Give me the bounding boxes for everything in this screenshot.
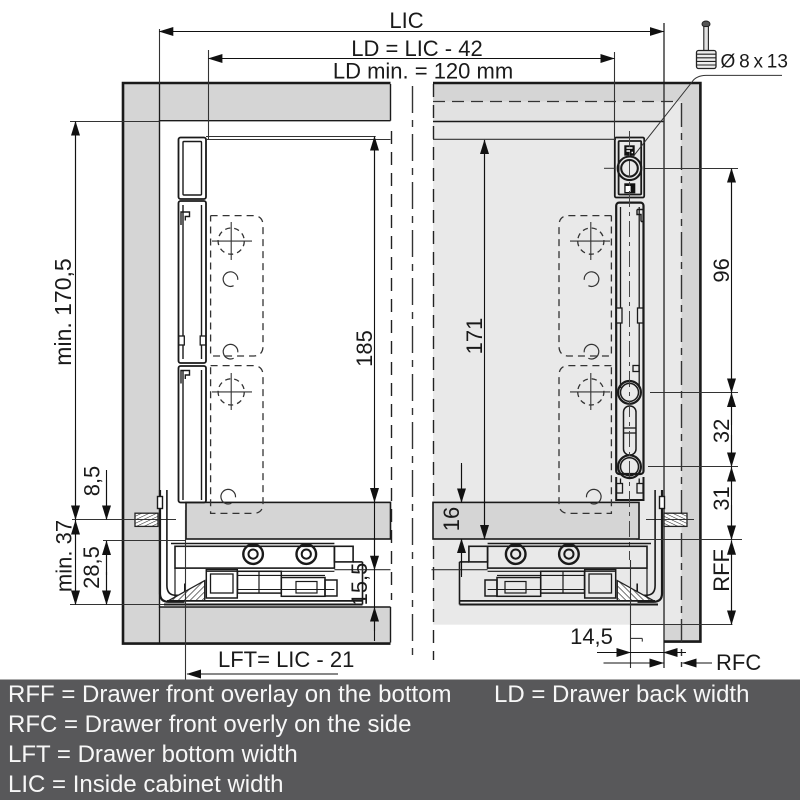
svg-text:28,5: 28,5 bbox=[79, 546, 104, 589]
svg-text:31: 31 bbox=[709, 486, 734, 510]
svg-text:LFT = Drawer bottom width: LFT = Drawer bottom width bbox=[8, 741, 298, 768]
svg-text:LD = LIC - 42: LD = LIC - 42 bbox=[351, 36, 482, 61]
svg-text:32: 32 bbox=[709, 419, 734, 443]
svg-text:15,5: 15,5 bbox=[347, 563, 372, 606]
svg-text:LIC: LIC bbox=[389, 8, 423, 33]
svg-text:LD min. = 120 mm: LD min. = 120 mm bbox=[333, 59, 513, 84]
svg-text:RFC = Drawer front overly on t: RFC = Drawer front overly on the side bbox=[8, 711, 412, 738]
svg-text:8,5: 8,5 bbox=[80, 466, 105, 497]
svg-text:min. 170,5: min. 170,5 bbox=[50, 258, 76, 365]
svg-text:min. 37: min. 37 bbox=[52, 520, 77, 592]
svg-text:16: 16 bbox=[439, 507, 464, 531]
svg-text:LIC = Inside cabinet width: LIC = Inside cabinet width bbox=[8, 771, 284, 798]
svg-text:185: 185 bbox=[352, 330, 377, 367]
svg-text:Ø 8 x 13: Ø 8 x 13 bbox=[721, 52, 788, 73]
svg-text:171: 171 bbox=[462, 318, 487, 355]
svg-text:RFC: RFC bbox=[716, 650, 761, 675]
svg-text:LD = Drawer back width: LD = Drawer back width bbox=[494, 681, 749, 708]
svg-text:14,5: 14,5 bbox=[570, 624, 613, 649]
svg-text:RFF = Drawer front overlay on: RFF = Drawer front overlay on the bottom bbox=[8, 681, 452, 708]
svg-text:RFF: RFF bbox=[709, 549, 734, 592]
svg-text:96: 96 bbox=[709, 258, 734, 282]
svg-text:LFT= LIC - 21: LFT= LIC - 21 bbox=[218, 647, 354, 672]
